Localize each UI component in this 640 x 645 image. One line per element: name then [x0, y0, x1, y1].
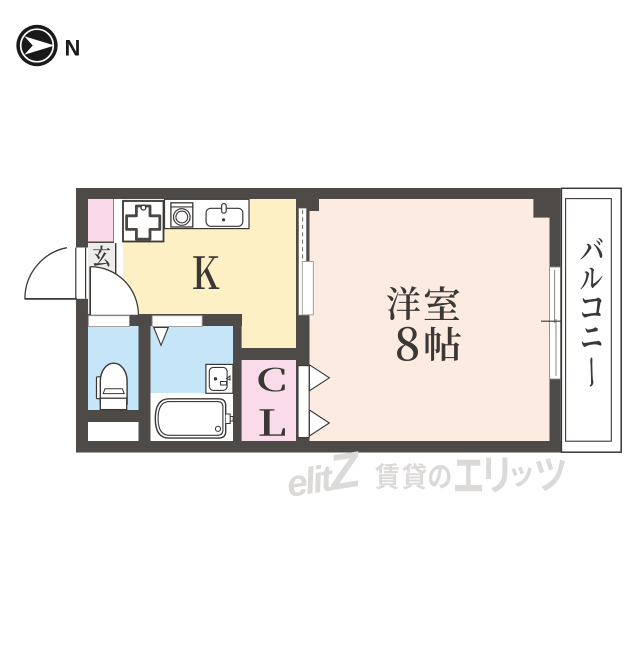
svg-text:N: N — [65, 36, 81, 61]
